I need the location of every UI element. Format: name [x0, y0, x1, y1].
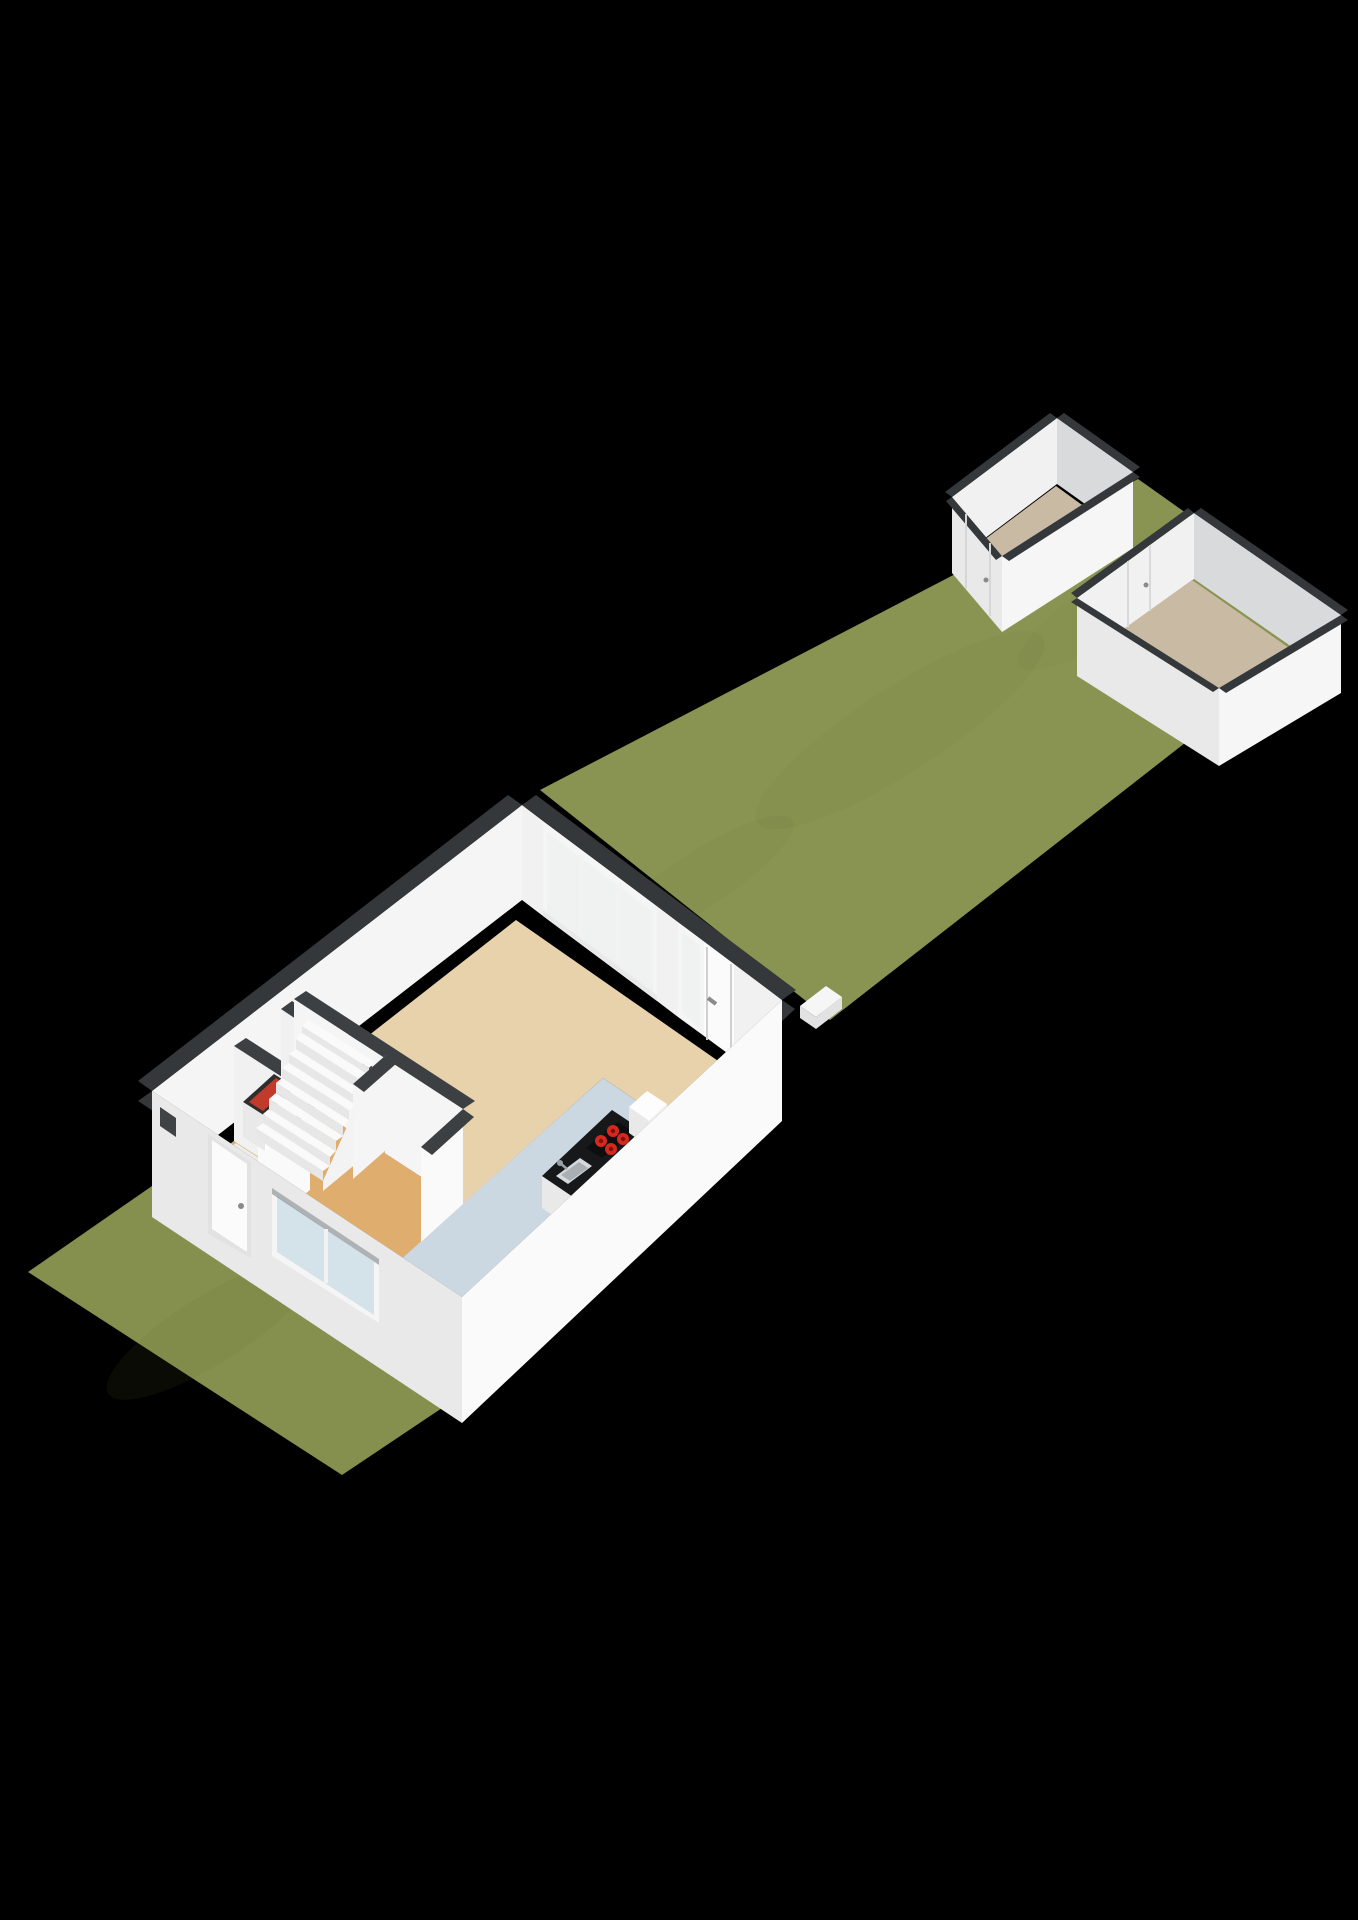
door-handle [1144, 583, 1149, 588]
burner-core [599, 1139, 603, 1143]
glass-panel [682, 932, 700, 1028]
glass-wall-pier [657, 906, 678, 1017]
floorplan-render [0, 0, 1358, 1920]
burner-core [621, 1137, 625, 1141]
burner-core [609, 1147, 613, 1151]
burner-core [611, 1129, 615, 1133]
door-handle [984, 578, 989, 583]
door-handle [238, 1203, 244, 1209]
glass-wall-pier [522, 805, 543, 916]
